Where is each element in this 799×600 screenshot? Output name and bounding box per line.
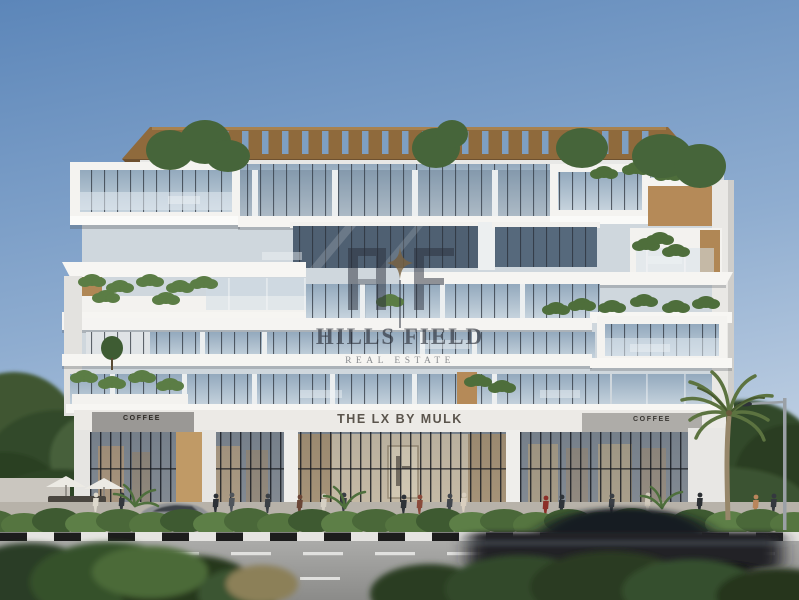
architectural-rendering: HILLS FIELD REAL ESTATE THE LX BY MULK C… (0, 0, 799, 600)
scene (0, 0, 799, 600)
building (62, 127, 734, 512)
coffee-sign-band-right (582, 413, 702, 434)
ground-floor (74, 410, 726, 512)
coffee-sign-band-left (92, 412, 194, 432)
